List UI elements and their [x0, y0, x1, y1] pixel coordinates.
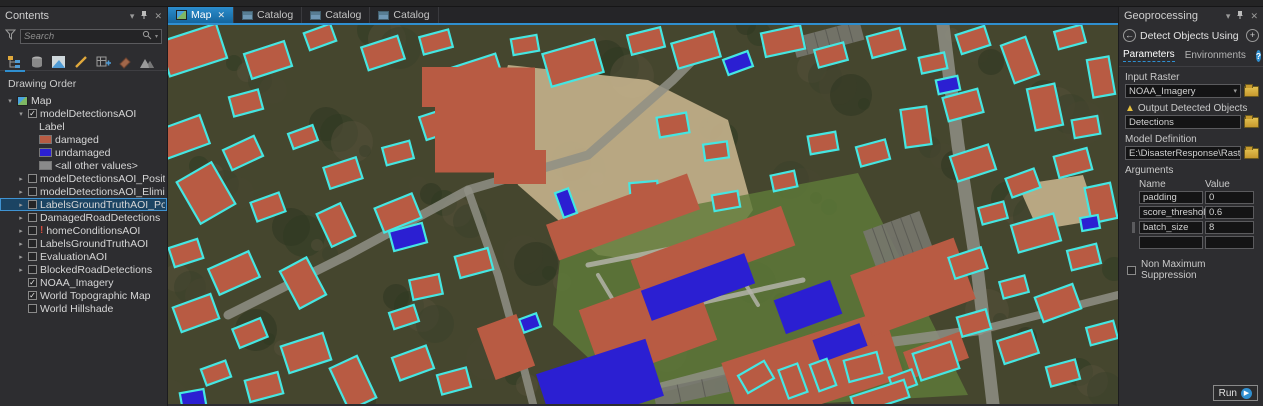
layer-item-11[interactable]: ▸LabelsGroundTruthAOI	[0, 237, 167, 250]
argument-name-input[interactable]: batch_size	[1139, 221, 1203, 234]
input-raster-select[interactable]: NOAA_Imagery▾	[1125, 84, 1241, 98]
layer-item-16[interactable]: World Hillshade	[0, 302, 167, 315]
output-label: ▲ Output Detected Objects	[1119, 98, 1263, 115]
argument-row-2: batch_size8	[1139, 221, 1263, 234]
layer-checkbox[interactable]	[28, 200, 37, 209]
warning-icon: ▲	[1125, 104, 1135, 114]
arguments-label: Arguments	[1119, 160, 1263, 177]
argument-value-input[interactable]: 0	[1205, 191, 1254, 204]
doc-tab-catalog-2[interactable]: Catalog	[302, 7, 370, 23]
panel-menu-icon[interactable]: ▾	[1226, 11, 1231, 22]
expander-closed-icon[interactable]: ▸	[17, 240, 25, 248]
layer-checkbox[interactable]	[28, 239, 37, 248]
doc-tab-label: Catalog	[325, 9, 361, 21]
damaged-building-detection[interactable]	[422, 67, 468, 107]
vegetation-texture	[416, 305, 454, 343]
expander-closed-icon[interactable]: ▸	[17, 253, 25, 261]
layer-checkbox[interactable]	[28, 278, 37, 287]
expander-closed-icon[interactable]: ▸	[17, 266, 25, 274]
layer-checkbox[interactable]	[28, 226, 37, 235]
doc-tab-label: Catalog	[257, 9, 293, 21]
vegetation-texture	[542, 266, 556, 280]
vegetation-texture	[259, 76, 287, 104]
search-caret-icon[interactable]: ▾	[155, 33, 158, 40]
layer-checkbox[interactable]	[28, 265, 37, 274]
contents-panel: Contents ▾ ✕ Search ▾ Drawing Order ▾Map…	[0, 7, 168, 406]
layer-item-6[interactable]: ▸modelDetectionsAOI_Positive	[0, 172, 167, 185]
layer-item-5[interactable]: <all other values>	[0, 159, 167, 172]
layer-item-12[interactable]: ▸EvaluationAOI	[0, 250, 167, 263]
legend-swatch-damaged[interactable]	[39, 135, 52, 144]
layer-label: modelDetectionsAOI_Eliminate	[40, 186, 165, 198]
damaged-building-detection[interactable]	[1072, 116, 1101, 138]
layer-item-9[interactable]: ▸DamagedRoadDetections	[0, 211, 167, 224]
close-icon[interactable]: ✕	[154, 11, 162, 22]
run-button[interactable]: Run ▶	[1213, 385, 1258, 401]
map-viewport[interactable]	[168, 25, 1118, 404]
legend-swatch-other[interactable]	[39, 161, 52, 170]
layer-item-7[interactable]: ▸modelDetectionsAOI_Eliminate	[0, 185, 167, 198]
doc-tab-label: Map	[191, 9, 211, 21]
output-input[interactable]: Detections	[1125, 115, 1241, 129]
catalog-icon	[310, 11, 321, 20]
argument-value-input[interactable]	[1205, 236, 1254, 249]
doc-tab-map-0[interactable]: Map✕	[168, 7, 234, 23]
help-icon[interactable]: ?	[1256, 50, 1261, 62]
catalog-icon	[378, 11, 389, 20]
layer-checkbox[interactable]	[28, 213, 37, 222]
labeling-icon[interactable]	[116, 54, 134, 70]
undamaged-building-detection[interactable]	[1080, 215, 1100, 231]
close-icon[interactable]: ✕	[217, 10, 225, 21]
layer-label: BlockedRoadDetections	[40, 264, 152, 276]
close-icon[interactable]: ✕	[1250, 11, 1258, 22]
expander-closed-icon[interactable]: ▸	[17, 188, 25, 196]
filter-icon[interactable]	[5, 27, 16, 45]
vegetation-texture	[858, 98, 870, 110]
drawing-order-icon[interactable]	[6, 54, 24, 70]
play-icon: ▶	[1241, 388, 1252, 399]
layer-label: LabelsGroundTruthAOI	[40, 238, 148, 250]
argument-name-input[interactable]: padding	[1139, 191, 1203, 204]
browse-folder-icon[interactable]	[1244, 117, 1259, 128]
arguments-header: Name Value	[1119, 177, 1263, 191]
geoprocessing-titlebar: Geoprocessing ▾ ✕	[1119, 7, 1263, 25]
vegetation-texture	[978, 49, 1004, 75]
expander-closed-icon[interactable]: ▸	[17, 175, 25, 183]
argument-row-0: padding0	[1139, 191, 1263, 204]
argument-value-input[interactable]: 0.6	[1205, 206, 1254, 219]
layer-item-13[interactable]: ▸BlockedRoadDetections	[0, 263, 167, 276]
layer-checkbox[interactable]	[28, 304, 37, 313]
vegetation-texture	[311, 239, 323, 251]
layer-label: Map	[31, 95, 51, 107]
map-canvas[interactable]	[168, 25, 1118, 404]
argument-row-3	[1139, 236, 1263, 249]
doc-tab-catalog-3[interactable]: Catalog	[370, 7, 438, 23]
input-raster-label: Input Raster	[1119, 67, 1263, 84]
expander-closed-icon[interactable]: ▸	[17, 227, 25, 235]
layer-label: homeConditionsAOI	[46, 225, 140, 237]
layer-label: World Topographic Map	[40, 290, 151, 302]
editing-icon[interactable]	[72, 54, 90, 70]
argument-row-1: score_threshold0.6	[1139, 206, 1263, 219]
layer-item-15[interactable]: World Topographic Map	[0, 289, 167, 302]
expander-open-icon[interactable]: ▾	[17, 110, 25, 118]
damaged-building-detection[interactable]	[656, 113, 689, 138]
map-icon	[17, 96, 28, 106]
catalog-icon	[242, 11, 253, 20]
drawing-order-label: Drawing Order	[0, 71, 167, 94]
layer-item-4[interactable]: undamaged	[0, 146, 167, 159]
row-grip[interactable]	[1132, 222, 1135, 233]
layer-label: damaged	[55, 134, 99, 146]
snapping-icon[interactable]	[94, 54, 112, 70]
argument-name-input[interactable]: score_threshold	[1139, 206, 1203, 219]
layer-label: <all other values>	[55, 160, 138, 172]
tool-title: Detect Objects Using Deep Learn...	[1140, 30, 1242, 42]
nms-label: Non Maximum Suppression	[1141, 259, 1257, 281]
damaged-building-detection[interactable]	[494, 150, 546, 184]
layer-label: modelDetectionsAOI	[40, 108, 136, 120]
vegetation-texture	[359, 145, 371, 157]
expander-open-icon[interactable]: ▾	[6, 97, 14, 105]
add-icon[interactable]: +	[1246, 29, 1259, 42]
layer-item-14[interactable]: NOAA_Imagery	[0, 276, 167, 289]
damaged-building-detection[interactable]	[511, 35, 539, 55]
contents-title: Contents	[5, 10, 130, 22]
selection-icon[interactable]	[50, 54, 68, 70]
layer-label: undamaged	[55, 147, 110, 159]
legend-swatch-undamaged[interactable]	[39, 148, 52, 157]
layer-label: NOAA_Imagery	[40, 277, 114, 289]
contents-titlebar: Contents ▾ ✕	[0, 7, 167, 25]
layer-item-0[interactable]: ▾Map	[0, 94, 167, 107]
layer-label: EvaluationAOI	[40, 251, 107, 263]
layer-item-2[interactable]: Label	[0, 120, 167, 133]
model-definition-input[interactable]: E:\DisasterResponse\RasterFunctions\Sing…	[1125, 146, 1241, 160]
pin-icon[interactable]	[1236, 10, 1244, 22]
nms-checkbox[interactable]	[1127, 266, 1136, 275]
layer-label: World Hillshade	[40, 303, 113, 315]
expander-closed-icon[interactable]: ▸	[17, 201, 25, 209]
layer-label: Label	[39, 121, 65, 133]
damaged-building-detection[interactable]	[703, 141, 729, 160]
layer-item-1[interactable]: ▾modelDetectionsAOI	[0, 107, 167, 120]
layer-item-3[interactable]: damaged	[0, 133, 167, 146]
layer-label: modelDetectionsAOI_Positive	[40, 173, 165, 185]
chevron-down-icon: ▾	[1233, 87, 1237, 95]
layer-checkbox[interactable]	[28, 174, 37, 183]
expander-closed-icon[interactable]: ▸	[17, 214, 25, 222]
argument-value-input[interactable]: 8	[1205, 221, 1254, 234]
arcgis-window: Contents ▾ ✕ Search ▾ Drawing Order ▾Map…	[0, 0, 1263, 406]
panel-menu-icon[interactable]: ▾	[130, 11, 135, 22]
browse-folder-icon[interactable]	[1244, 148, 1259, 159]
pin-icon[interactable]	[140, 10, 148, 22]
ribbon-strip	[0, 0, 1263, 7]
layer-item-8[interactable]: ▸LabelsGroundTruthAOI_Positive	[0, 198, 167, 211]
layer-label: DamagedRoadDetections	[40, 212, 160, 224]
browse-folder-icon[interactable]	[1244, 86, 1259, 97]
doc-tab-label: Catalog	[393, 9, 429, 21]
layer-checkbox[interactable]	[28, 291, 37, 300]
undamaged-building-detection[interactable]	[936, 76, 960, 94]
map-area: Map✕CatalogCatalogCatalog	[168, 7, 1118, 406]
search-icon	[142, 27, 152, 45]
argument-name-input[interactable]	[1139, 236, 1203, 249]
back-icon[interactable]: ←	[1123, 29, 1136, 42]
layer-checkbox[interactable]	[28, 252, 37, 261]
layer-checkbox[interactable]	[28, 109, 37, 118]
search-input[interactable]: Search ▾	[20, 29, 162, 44]
model-definition-label: Model Definition	[1119, 129, 1263, 146]
damaged-building-detection[interactable]	[771, 171, 798, 192]
layer-item-10[interactable]: ▸!homeConditionsAOI	[0, 224, 167, 237]
damaged-building-detection[interactable]	[900, 106, 931, 147]
map-icon	[176, 10, 187, 20]
layer-warning-icon: !	[40, 225, 43, 236]
data-source-icon[interactable]	[28, 54, 46, 70]
layer-label: LabelsGroundTruthAOI_Positive	[40, 199, 165, 211]
doc-tab-catalog-1[interactable]: Catalog	[234, 7, 302, 23]
tab-environments[interactable]: Environments	[1185, 50, 1246, 62]
damaged-building-detection[interactable]	[712, 191, 740, 211]
tab-parameters[interactable]: Parameters	[1123, 49, 1175, 62]
perspective-icon[interactable]	[138, 54, 156, 70]
layer-checkbox[interactable]	[28, 187, 37, 196]
doc-tabbar: Map✕CatalogCatalogCatalog	[168, 7, 1118, 25]
geoprocessing-panel: Geoprocessing ▾ ✕ ← Detect Objects Using…	[1118, 7, 1263, 406]
damaged-building-detection[interactable]	[808, 132, 839, 155]
geoprocessing-title: Geoprocessing	[1124, 10, 1226, 22]
